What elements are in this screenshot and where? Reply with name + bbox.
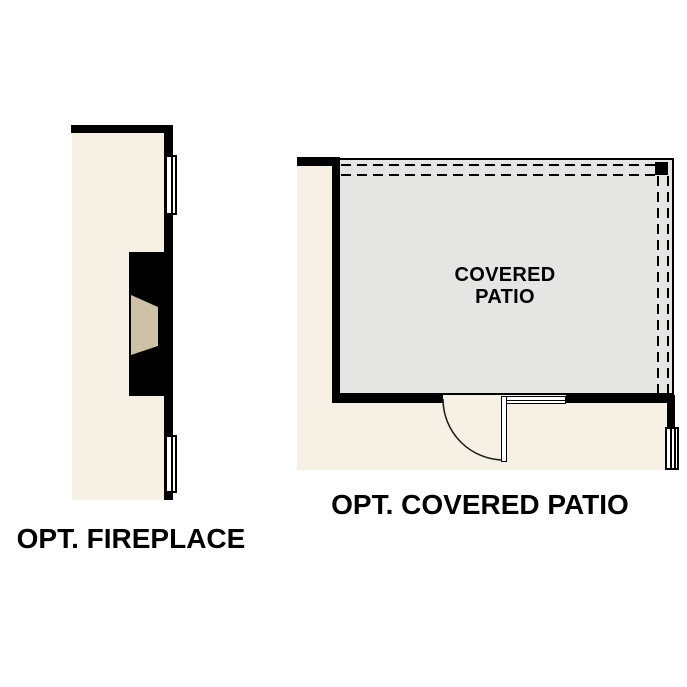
patio-left-wall	[332, 157, 340, 403]
patio-bottom-window-icon	[505, 396, 566, 404]
patio-bottom-wall-left	[332, 395, 443, 403]
window-mullion	[674, 429, 676, 468]
patio-door-swing-arc	[440, 396, 510, 466]
fireplace-caption: OPT. FIREPLACE	[10, 522, 252, 556]
patio-right-window-icon	[665, 427, 679, 470]
fireplace-upper-window-icon	[165, 155, 177, 215]
patio-right-wall-stub	[667, 403, 675, 427]
patio-room-label: COVERED PATIO	[405, 264, 605, 308]
fireplace-top-wall	[71, 125, 173, 133]
patio-roofline-dash-right-inner	[667, 176, 669, 395]
patio-door-leaf	[501, 396, 507, 462]
fireplace-lower-window-icon	[165, 435, 177, 493]
patio-room-label-line1: COVERED	[405, 264, 605, 286]
window-mullion	[506, 400, 565, 402]
patio-roofline-dash-right-outer	[657, 176, 659, 395]
patio-corner-post	[655, 162, 668, 175]
window-mullion	[171, 157, 173, 213]
patio-bottom-wall-right	[566, 395, 675, 403]
patio-caption: OPT. COVERED PATIO	[330, 488, 630, 522]
patio-roofline-dash-top-outer	[341, 164, 655, 166]
patio-roofline-dash-top-inner	[341, 174, 655, 176]
window-mullion	[171, 437, 173, 491]
window-mullion	[670, 429, 672, 468]
floor-plan-canvas: OPT. FIREPLACE	[0, 0, 687, 687]
patio-room-label-line2: PATIO	[405, 286, 605, 308]
